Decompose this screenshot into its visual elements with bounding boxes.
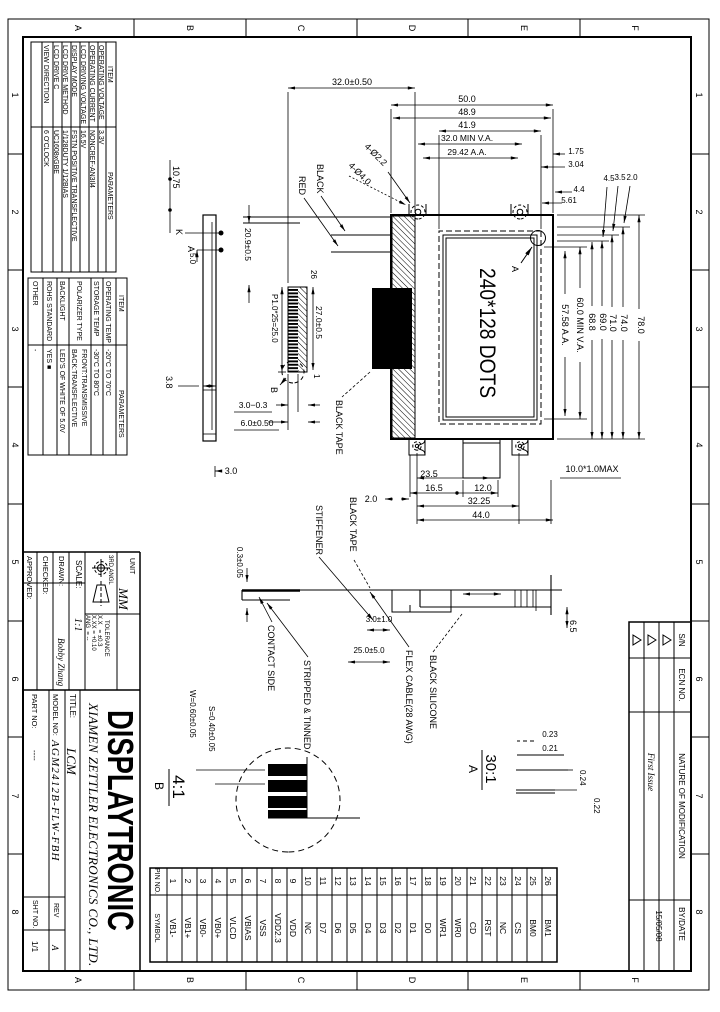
svg-text:BM0: BM0 [528,919,538,937]
svg-text:12: 12 [333,876,343,886]
svg-text:3.0: 3.0 [225,466,238,476]
svg-text:XIAMEN ZETTLER ELECTRONICS CO.: XIAMEN ZETTLER ELECTRONICS CO., LTD. [86,702,101,967]
svg-text:3.0±1.0: 3.0±1.0 [366,615,393,624]
svg-text:25: 25 [528,876,538,886]
svg-text:21: 21 [468,876,478,886]
svg-text:32.0 MIN V.A.: 32.0 MIN V.A. [441,133,493,143]
svg-text:A: A [73,25,83,31]
svg-text:7: 7 [694,793,704,798]
svg-text:32.0±0.50: 32.0±0.50 [332,77,372,87]
svg-text:PARAMETERS: PARAMETERS [106,172,113,220]
svg-text:3RD ANGL: 3RD ANGL [107,555,113,585]
svg-text:BLACK TAPE: BLACK TAPE [348,497,358,552]
svg-text:VB0-: VB0- [198,919,208,938]
svg-text:5: 5 [10,559,20,564]
svg-text:OPERATING VOLTAGE: OPERATING VOLTAGE [97,45,104,120]
svg-text:71.0: 71.0 [608,314,618,332]
svg-text:E: E [519,977,529,983]
svg-text:3.0−0.3: 3.0−0.3 [239,400,268,410]
svg-text:PIN NO.: PIN NO. [153,868,160,894]
svg-text:60.0 MIN V.A.: 60.0 MIN V.A. [575,297,585,352]
svg-text:23.5: 23.5 [420,469,438,479]
svg-text:CS: CS [513,922,523,934]
svg-text:ITEM: ITEM [106,66,113,83]
svg-text:SCALE:: SCALE: [74,560,83,588]
svg-text:16.5V: 16.5V [79,130,86,149]
svg-text:S/N: S/N [677,633,686,647]
svg-text:K: K [174,229,184,235]
svg-text:3.5: 3.5 [614,173,626,182]
svg-text:26: 26 [309,270,318,279]
svg-text:F: F [630,25,640,31]
svg-text:D6: D6 [333,923,343,934]
svg-text:STORAGE TEMP: STORAGE TEMP [92,281,99,337]
svg-text:8: 8 [10,909,20,914]
svg-text:0.23: 0.23 [542,730,558,739]
svg-text:1/1: 1/1 [30,941,39,953]
svg-text:RST: RST [483,920,493,937]
svg-text:26: 26 [543,876,553,886]
svg-text:STIFFENER: STIFFENER [314,505,324,556]
svg-text:15/05/08: 15/05/08 [654,910,663,942]
svg-text:6: 6 [694,676,704,681]
svg-text:2: 2 [10,209,20,214]
svg-text:D: D [407,977,417,984]
svg-text:LCM: LCM [64,747,79,776]
svg-text:0.22: 0.22 [592,798,601,814]
svg-text:LCD DRIVING VOLTAGE: LCD DRIVING VOLTAGE [79,45,86,124]
svg-text:22: 22 [483,876,493,886]
svg-text:OPERATING TEMP: OPERATING TEMP [104,281,111,343]
svg-text:W=0.60±0.05: W=0.60±0.05 [188,690,197,738]
svg-text:44.0: 44.0 [472,510,490,520]
svg-text:BLACK: BLACK [315,164,325,194]
svg-text:BLACK SILICONE: BLACK SILICONE [428,655,438,729]
svg-text:A: A [510,266,520,272]
svg-text:3.04: 3.04 [568,160,584,169]
svg-text:12.0: 12.0 [474,483,492,493]
svg-text:A: A [186,246,196,252]
svg-text:6.5: 6.5 [568,620,578,633]
svg-text:0.21: 0.21 [542,744,558,753]
svg-text:48.9: 48.9 [458,107,476,117]
svg-text:15: 15 [378,876,388,886]
svg-text:6 O'CLOCK: 6 O'CLOCK [42,130,49,167]
svg-text:3: 3 [198,879,208,884]
svg-text:VIEW DIRECTION: VIEW DIRECTION [42,45,49,103]
svg-text:78.0: 78.0 [636,316,646,334]
svg-text:23: 23 [498,876,508,886]
svg-text:0.3±0.05: 0.3±0.05 [235,547,244,579]
svg-text:3.8: 3.8 [164,376,174,389]
svg-text:C: C [296,977,306,984]
svg-text:VB1-: VB1- [168,919,178,938]
svg-text:A: A [73,977,83,983]
svg-text:P1.0*25=25.0: P1.0*25=25.0 [270,294,279,343]
svg-text:B: B [185,977,195,983]
svg-text:POLARIZER TYPE: POLARIZER TYPE [75,281,82,341]
svg-text:NATURE OF MODIFICATION: NATURE OF MODIFICATION [677,753,686,859]
svg-text:5: 5 [228,879,238,884]
svg-text:NC: NC [498,922,508,934]
svg-text:DISPLAYTRONIC: DISPLAYTRONIC [100,710,141,931]
svg-text:SHT NO.: SHT NO. [31,900,38,928]
svg-text:D7: D7 [318,923,328,934]
svg-text:OPERATING CURRENT: OPERATING CURRENT [88,45,95,123]
svg-text:10.75: 10.75 [171,166,181,189]
svg-text:DRAWN:: DRAWN: [57,556,66,586]
svg-text:WR0: WR0 [453,919,463,938]
svg-text:16: 16 [393,876,403,886]
svg-text:LCD DRIVE C: LCD DRIVE C [52,45,59,89]
svg-text:FSTN POSITIVE TRANSFLECTIVE: FSTN POSITIVE TRANSFLECTIVE [70,130,77,242]
svg-text:8: 8 [273,879,283,884]
svg-text:1:1: 1:1 [72,618,83,631]
svg-text:D3: D3 [378,923,388,934]
svg-text:UNIT: UNIT [128,558,135,575]
svg-text:10.0*1.0MAX: 10.0*1.0MAX [565,464,618,474]
svg-text:2: 2 [183,879,193,884]
svg-text:1/128DUTY 1/12BIAS: 1/128DUTY 1/12BIAS [61,130,68,198]
svg-text:BACKLIGHT: BACKLIGHT [58,281,65,321]
svg-text:5.0: 5.0 [188,253,197,265]
svg-text:TITLE:: TITLE: [68,694,77,718]
svg-text:1: 1 [312,374,321,379]
svg-text:First Issue: First Issue [646,752,656,791]
svg-text:CONTACT SIDE: CONTACT SIDE [266,625,276,691]
svg-text:D5: D5 [348,923,358,934]
svg-text:VLCD: VLCD [228,917,238,940]
svg-text:-30°C TO 80°C: -30°C TO 80°C [92,349,100,396]
svg-text:30:1: 30:1 [482,754,499,783]
svg-text:YES ■: YES ■ [45,349,52,369]
svg-text:3.3V: 3.3V [97,130,104,145]
svg-text:18: 18 [423,876,433,886]
svg-text:AGM2412B-FLW-FBH: AGM2412B-FLW-FBH [49,739,61,862]
svg-text:BY/DATE: BY/DATE [677,907,686,941]
svg-text:6.0±0.50: 6.0±0.50 [240,418,273,428]
svg-text:UC1608xGBE: UC1608xGBE [52,130,59,174]
svg-text:VB1+: VB1+ [183,917,193,938]
svg-text:20: 20 [453,876,463,886]
svg-text:A: A [50,944,60,951]
svg-text:D1: D1 [408,923,418,934]
svg-text:BM1: BM1 [543,919,553,937]
svg-text:13: 13 [348,876,358,886]
svg-text:4: 4 [10,442,20,447]
svg-text:D0: D0 [423,923,433,934]
svg-text:VDD: VDD [288,919,298,937]
svg-text:B: B [185,25,195,31]
svg-text:27.0±0.5: 27.0±0.5 [314,306,324,339]
svg-text:D2: D2 [393,923,403,934]
svg-text:VDD2.3: VDD2.3 [273,913,283,943]
svg-text:PART NO:: PART NO: [30,694,39,729]
svg-text:17: 17 [408,876,418,886]
svg-text:----: ---- [30,750,39,761]
svg-text:D: D [407,25,417,32]
svg-text:20.9±0.5: 20.9±0.5 [243,228,253,261]
svg-text:2: 2 [694,209,704,214]
svg-text:BLACK TAPE: BLACK TAPE [334,400,344,455]
svg-text:29.42 A.A.: 29.42 A.A. [447,147,486,157]
svg-text:4: 4 [694,442,704,447]
svg-text:16.5: 16.5 [425,483,443,493]
svg-text:240*128 DOTS: 240*128 DOTS [475,268,500,398]
svg-text:6: 6 [243,879,253,884]
svg-text:4:1: 4:1 [169,775,188,799]
svg-text:ANG = --: ANG = -- [84,615,90,641]
svg-text:7: 7 [10,793,20,798]
svg-text:2.0: 2.0 [626,173,638,182]
svg-text:1: 1 [10,92,20,97]
svg-text:-20°C TO 70°C: -20°C TO 70°C [104,349,112,396]
svg-text:B: B [152,782,166,790]
svg-text:NONCREF-AN3Il4: NONCREF-AN3Il4 [88,130,95,188]
svg-text:CD: CD [468,922,478,934]
svg-text:ITEM: ITEM [117,295,124,312]
svg-text:LCD DRIVE METHOD: LCD DRIVE METHOD [61,45,68,115]
svg-text:S=0.40±0.05: S=0.40±0.05 [207,706,216,752]
svg-text:F: F [630,977,640,983]
svg-text:SYMBOL: SYMBOL [153,913,160,942]
svg-text:68.8: 68.8 [587,313,597,331]
svg-text:1: 1 [168,879,178,884]
svg-text:CHECKED:: CHECKED: [41,556,50,595]
svg-text:57.58 A.A.: 57.58 A.A. [560,304,570,346]
svg-text:REV: REV [52,903,59,918]
svg-text:APPROVED:: APPROVED: [25,556,34,600]
svg-text:MODEL NO:: MODEL NO: [51,694,60,736]
svg-text:5: 5 [694,559,704,564]
svg-text:FRONT:TRANSMISSIVE: FRONT:TRANSMISSIVE [80,349,87,427]
svg-text:5.61: 5.61 [561,196,577,205]
svg-text:ECN NO.: ECN NO. [677,668,686,701]
svg-text:4: 4 [213,879,223,884]
svg-text:OTHER: OTHER [31,281,38,306]
svg-text:PARAMETERS: PARAMETERS [117,390,124,438]
svg-text:RED: RED [297,176,307,196]
svg-text:11: 11 [318,877,328,886]
svg-text:14: 14 [363,876,373,886]
svg-text:STRIPPED & TINNED: STRIPPED & TINNED [302,660,312,750]
svg-text:B: B [269,387,279,393]
svg-text:2.0: 2.0 [365,494,378,504]
svg-text:VBIAS: VBIAS [243,915,253,940]
svg-text:VSS: VSS [258,919,268,936]
svg-text:9: 9 [288,879,298,884]
svg-text:10: 10 [303,876,313,886]
svg-text:ROHS STANDARD: ROHS STANDARD [45,281,52,341]
svg-text:0.24: 0.24 [578,770,587,786]
svg-text:3: 3 [694,326,704,331]
svg-text:DISPLAY MODE: DISPLAY MODE [70,45,77,97]
svg-text:8: 8 [694,909,704,914]
svg-text:4.5: 4.5 [603,174,615,183]
svg-text:3: 3 [10,326,20,331]
svg-text:69.0: 69.0 [598,313,608,331]
svg-text:Bobby Zhang: Bobby Zhang [56,638,66,687]
svg-text:MM: MM [116,587,131,611]
svg-text:74.0: 74.0 [619,314,629,332]
svg-text:25.0±5.0: 25.0±5.0 [353,646,385,655]
svg-text:4.4: 4.4 [573,185,585,194]
svg-text:BACK:TRANSFLECTIVE: BACK:TRANSFLECTIVE [70,349,77,428]
svg-text:1: 1 [694,92,704,97]
svg-text:C: C [296,25,306,32]
svg-text:TOLERANCE: TOLERANCE [103,620,109,657]
svg-text:19: 19 [438,876,448,886]
svg-text:32.25: 32.25 [468,496,491,506]
svg-text:7: 7 [258,879,268,884]
svg-text:VB0+: VB0+ [213,917,223,938]
svg-text:E: E [519,25,529,31]
svg-text:41.9: 41.9 [458,120,476,130]
svg-text:FLEX CABLE(28 AWG): FLEX CABLE(28 AWG) [404,650,414,744]
svg-text:1.75: 1.75 [568,147,584,156]
svg-text:D4: D4 [363,923,373,934]
svg-text:X.X = ±0.3: X.X = ±0.3 [96,615,102,647]
svg-text:50.0: 50.0 [458,94,476,104]
svg-text:6: 6 [10,676,20,681]
svg-text:A: A [466,765,480,773]
svg-text:NC: NC [303,922,313,934]
svg-text:X.XX = +0.10: X.XX = +0.10 [90,615,96,651]
svg-text:LED'S OF WHITE OF 5.0V: LED'S OF WHITE OF 5.0V [58,349,65,433]
svg-text:WR1: WR1 [438,919,448,938]
svg-text:24: 24 [513,876,523,886]
